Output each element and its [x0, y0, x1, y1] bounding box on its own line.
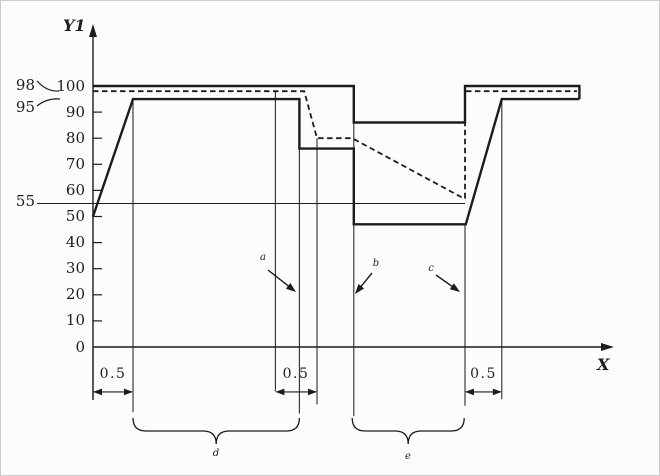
dimension-arrowhead-left-1: [275, 389, 284, 396]
dimension-label-2: 0.5: [276, 367, 316, 382]
callout-arrow-line-a: [268, 270, 291, 288]
dimension-arrowhead-left-0: [93, 389, 102, 396]
brace-label-e: e: [396, 451, 420, 462]
y-tick-label-10: 10: [53, 312, 85, 329]
reference-label-98: 98: [9, 77, 35, 94]
x-axis-arrowhead: [601, 343, 614, 351]
diagram-canvas: Y1 X 98 95 55 0.5 0.5 0.5 a b c d e 0102…: [0, 0, 660, 476]
series-response-dashed: [93, 91, 577, 198]
y-tick-label-20: 20: [53, 286, 85, 303]
y-tick-label-90: 90: [53, 104, 85, 121]
dimension-arrowhead-left-2: [465, 389, 474, 396]
brace-label-d: d: [204, 448, 228, 459]
y-tick-label-40: 40: [53, 234, 85, 251]
brace-d: [133, 418, 299, 444]
y-tick-label-30: 30: [53, 260, 85, 277]
y-tick-label-100: 100: [53, 78, 85, 95]
reference-label-55: 55: [9, 193, 35, 210]
x-axis-label: X: [597, 356, 609, 374]
series-response-solid: [93, 99, 579, 224]
brace-e: [352, 418, 464, 444]
y-tick-label-70: 70: [53, 156, 85, 173]
dimension-label-1: 0.5: [93, 367, 133, 382]
y-axis-arrowhead: [89, 24, 97, 37]
callout-label-b: b: [370, 258, 382, 269]
diagram-svg: [1, 1, 660, 476]
callout-arrowhead-a: [286, 283, 296, 292]
callout-label-c: c: [425, 263, 437, 274]
dimension-arrowhead-right-0: [124, 389, 133, 396]
y-tick-label-0: 0: [53, 339, 85, 356]
dimension-label-3: 0.5: [463, 367, 504, 382]
y-tick-label-50: 50: [53, 208, 85, 225]
y-tick-label-60: 60: [53, 182, 85, 199]
y-axis-label: Y1: [63, 17, 86, 35]
dimension-arrowhead-right-2: [493, 389, 502, 396]
dimension-arrowhead-right-1: [308, 389, 317, 396]
callout-label-a: a: [257, 252, 269, 263]
y-tick-label-80: 80: [53, 130, 85, 147]
callout-arrowhead-c: [450, 283, 460, 292]
reference-label-95: 95: [9, 99, 35, 116]
